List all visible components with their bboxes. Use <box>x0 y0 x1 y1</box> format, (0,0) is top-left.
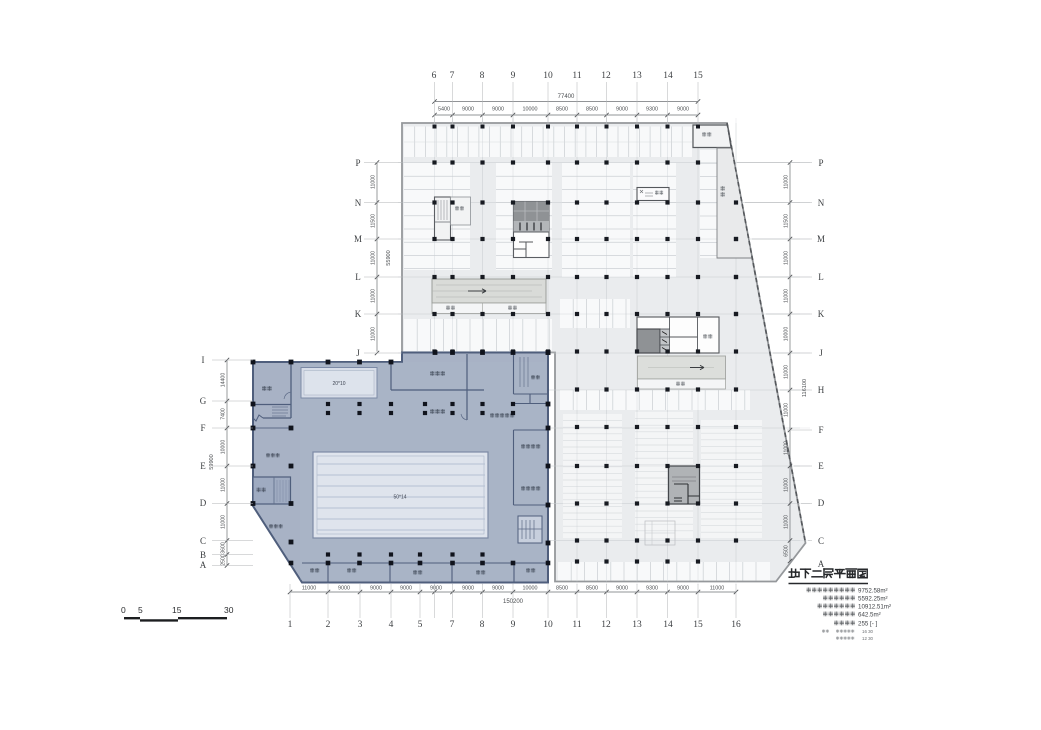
svg-text:10: 10 <box>543 620 553 630</box>
svg-text:5400: 5400 <box>438 107 450 113</box>
svg-text:8: 8 <box>480 620 485 630</box>
svg-text:50*14: 50*14 <box>393 495 406 501</box>
svg-text:N: N <box>355 198 362 208</box>
svg-text:5: 5 <box>138 605 143 615</box>
svg-text:30: 30 <box>224 605 234 615</box>
svg-text:11000: 11000 <box>302 586 317 592</box>
svg-text:11000: 11000 <box>784 515 790 529</box>
svg-text:9000: 9000 <box>338 586 350 592</box>
svg-text:11500: 11500 <box>784 214 790 228</box>
svg-text:11000: 11000 <box>371 251 377 265</box>
svg-text:C: C <box>818 536 824 546</box>
svg-text:M: M <box>817 234 825 244</box>
svg-text:2: 2 <box>326 620 331 630</box>
svg-text:9000: 9000 <box>462 107 474 113</box>
svg-text:9000: 9000 <box>616 586 628 592</box>
svg-text:8500: 8500 <box>586 107 598 113</box>
svg-text:11000: 11000 <box>784 403 790 417</box>
svg-text:H: H <box>818 385 825 395</box>
svg-text:150200: 150200 <box>503 599 524 605</box>
svg-text:13: 13 <box>632 71 642 81</box>
svg-text:F: F <box>200 423 205 433</box>
svg-text:5592.25m²: 5592.25m² <box>858 596 888 603</box>
svg-text:55900: 55900 <box>386 250 392 266</box>
svg-text:N: N <box>818 198 825 208</box>
svg-text:10912.51m²: 10912.51m² <box>858 604 891 611</box>
svg-text:9000: 9000 <box>492 107 504 113</box>
svg-text:9000: 9000 <box>616 107 628 113</box>
svg-text:8500: 8500 <box>586 586 598 592</box>
svg-text:11: 11 <box>572 620 581 630</box>
svg-text:L: L <box>355 272 361 282</box>
svg-text:G: G <box>200 396 207 406</box>
svg-text:642.5m²: 642.5m² <box>858 612 881 619</box>
svg-text:9300: 9300 <box>646 586 658 592</box>
svg-text:77400: 77400 <box>558 94 575 100</box>
svg-text:K: K <box>818 309 825 319</box>
svg-text:E: E <box>200 461 206 471</box>
svg-text:9000: 9000 <box>677 586 689 592</box>
svg-text:255 [- ]: 255 [- ] <box>858 621 878 628</box>
svg-text:E: E <box>818 461 824 471</box>
svg-text:9000: 9000 <box>430 586 442 592</box>
svg-text:11000: 11000 <box>784 175 790 189</box>
svg-text:8500: 8500 <box>556 107 568 113</box>
svg-text:10: 10 <box>543 71 553 81</box>
svg-text:A: A <box>818 559 825 569</box>
svg-text:15: 15 <box>172 605 182 615</box>
svg-text:3600: 3600 <box>221 542 227 554</box>
svg-text:9000: 9000 <box>370 586 382 592</box>
svg-text:K: K <box>355 309 362 319</box>
svg-text:15: 15 <box>693 620 703 630</box>
svg-text:B: B <box>200 550 206 560</box>
svg-text:10000: 10000 <box>523 586 538 592</box>
svg-text:0: 0 <box>121 605 126 615</box>
svg-text:6500: 6500 <box>784 545 790 557</box>
svg-text:11000: 11000 <box>784 478 790 492</box>
svg-text:11000: 11000 <box>371 289 377 303</box>
svg-text:59900: 59900 <box>209 454 215 470</box>
svg-text:I: I <box>202 355 205 365</box>
svg-text:L: L <box>818 272 824 282</box>
svg-text:9: 9 <box>511 71 516 81</box>
svg-text:10000: 10000 <box>784 327 790 342</box>
svg-text:11: 11 <box>572 71 581 81</box>
svg-text:A: A <box>200 560 207 570</box>
svg-text:16 30: 16 30 <box>862 629 874 634</box>
svg-text:14: 14 <box>663 71 673 81</box>
svg-text:11000: 11000 <box>784 289 790 303</box>
svg-text:9000: 9000 <box>462 586 474 592</box>
svg-text:8: 8 <box>480 71 485 81</box>
svg-text:J: J <box>819 348 823 358</box>
svg-text:11000: 11000 <box>221 515 227 529</box>
svg-text:16: 16 <box>731 620 741 630</box>
svg-text:7: 7 <box>450 620 455 630</box>
svg-text:116100: 116100 <box>802 379 808 397</box>
svg-text:3: 3 <box>358 620 363 630</box>
svg-text:11000: 11000 <box>221 478 227 492</box>
svg-text:11000: 11000 <box>371 175 377 189</box>
svg-text:P: P <box>355 158 360 168</box>
svg-text:12 30: 12 30 <box>862 636 874 641</box>
svg-text:J: J <box>356 348 360 358</box>
svg-text:14400: 14400 <box>221 373 227 388</box>
svg-text:8500: 8500 <box>556 586 568 592</box>
svg-text:12: 12 <box>601 71 611 81</box>
svg-text:D: D <box>818 498 825 508</box>
svg-text:6: 6 <box>432 71 437 81</box>
svg-text:20*10: 20*10 <box>332 381 345 387</box>
svg-text:9300: 9300 <box>646 107 658 113</box>
svg-text:9752.58m²: 9752.58m² <box>858 588 888 595</box>
svg-text:11000: 11000 <box>371 327 377 341</box>
svg-text:P: P <box>818 158 823 168</box>
svg-text:12: 12 <box>601 620 611 630</box>
svg-text:9000: 9000 <box>492 586 504 592</box>
svg-text:10000: 10000 <box>523 107 538 113</box>
svg-text:14: 14 <box>663 620 673 630</box>
svg-text:11000: 11000 <box>784 365 790 379</box>
svg-text:9000: 9000 <box>677 107 689 113</box>
svg-text:9: 9 <box>511 620 516 630</box>
svg-text:1: 1 <box>288 620 293 630</box>
svg-text:M: M <box>354 234 362 244</box>
svg-text:9000: 9000 <box>400 586 412 592</box>
svg-text:11000: 11000 <box>784 251 790 265</box>
svg-text:13: 13 <box>632 620 642 630</box>
svg-text:4: 4 <box>389 620 394 630</box>
svg-text:7: 7 <box>450 71 455 81</box>
svg-text:F: F <box>818 425 823 435</box>
svg-text:2500: 2500 <box>221 554 227 566</box>
svg-text:11500: 11500 <box>371 214 377 228</box>
svg-text:15: 15 <box>693 71 703 81</box>
svg-text:C: C <box>200 536 206 546</box>
svg-text:10000: 10000 <box>221 440 227 455</box>
svg-text:D: D <box>200 498 207 508</box>
svg-text:7400: 7400 <box>221 408 227 420</box>
svg-text:5: 5 <box>418 620 423 630</box>
svg-text:11000: 11000 <box>710 586 725 592</box>
